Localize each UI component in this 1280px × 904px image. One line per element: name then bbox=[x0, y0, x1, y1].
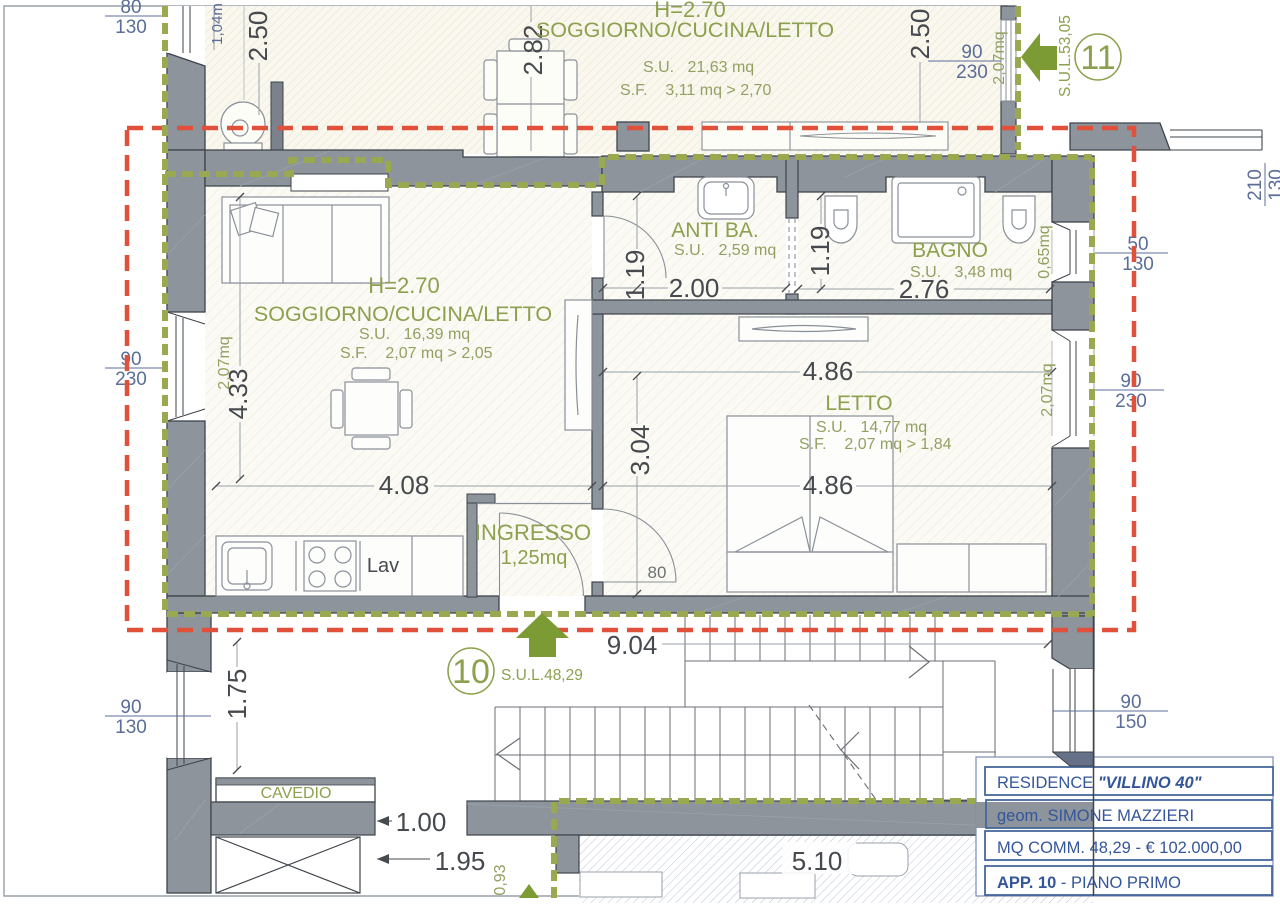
svg-text:CAVEDIO: CAVEDIO bbox=[261, 785, 332, 802]
svg-text:1.19: 1.19 bbox=[620, 250, 650, 301]
svg-text:9.04: 9.04 bbox=[607, 630, 658, 660]
svg-text:1,25mq: 1,25mq bbox=[501, 547, 568, 569]
svg-text:230: 230 bbox=[1115, 391, 1147, 412]
svg-text:H=2.70: H=2.70 bbox=[368, 273, 440, 298]
svg-text:BAGNO: BAGNO bbox=[912, 239, 988, 262]
svg-text:90: 90 bbox=[120, 349, 141, 370]
svg-text:LETTO: LETTO bbox=[825, 392, 892, 415]
svg-text:90: 90 bbox=[120, 697, 141, 718]
svg-text:MQ COMM. 48,29 - € 102.000,00: MQ COMM. 48,29 - € 102.000,00 bbox=[997, 839, 1242, 857]
svg-text:4.86: 4.86 bbox=[803, 356, 854, 386]
svg-text:2.50: 2.50 bbox=[905, 9, 935, 60]
svg-text:5.10: 5.10 bbox=[792, 846, 843, 876]
svg-text:1,04m: 1,04m bbox=[209, 3, 226, 45]
svg-text:S.U.L.53,05: S.U.L.53,05 bbox=[1057, 15, 1074, 97]
svg-text:S.U. 2,59 mq: S.U. 2,59 mq bbox=[674, 242, 776, 259]
svg-text:130: 130 bbox=[1266, 169, 1280, 201]
svg-text:4.86: 4.86 bbox=[803, 470, 854, 500]
svg-text:2,07mq: 2,07mq bbox=[991, 31, 1008, 84]
svg-text:0,65mq: 0,65mq bbox=[1036, 225, 1053, 278]
svg-text:4.08: 4.08 bbox=[379, 470, 430, 500]
svg-text:S.U. 3,48 mq: S.U. 3,48 mq bbox=[910, 264, 1012, 281]
svg-text:1.95: 1.95 bbox=[435, 846, 486, 876]
svg-text:230: 230 bbox=[115, 369, 147, 390]
svg-text:1.19: 1.19 bbox=[805, 226, 835, 277]
svg-text:90: 90 bbox=[1120, 692, 1141, 713]
svg-text:2.00: 2.00 bbox=[669, 273, 720, 303]
svg-text:S.F. 2,07 mq > 1,84: S.F. 2,07 mq > 1,84 bbox=[799, 436, 952, 453]
svg-text:geom. SIMONE MAZZIERI: geom. SIMONE MAZZIERI bbox=[997, 807, 1194, 825]
svg-text:130: 130 bbox=[115, 717, 147, 738]
svg-text:50: 50 bbox=[1127, 234, 1148, 255]
svg-text:210: 210 bbox=[1245, 169, 1266, 201]
svg-text:90: 90 bbox=[1120, 371, 1141, 392]
svg-text:80: 80 bbox=[120, 0, 141, 18]
svg-text:S.F. 3,11 mq > 2,70: S.F. 3,11 mq > 2,70 bbox=[620, 82, 771, 99]
svg-text:10: 10 bbox=[452, 653, 490, 691]
svg-text:INGRESSO: INGRESSO bbox=[475, 520, 591, 545]
svg-text:RESIDENCE "VILLINO 40": RESIDENCE "VILLINO 40" bbox=[997, 774, 1202, 792]
svg-text:S.U. 14,77 mq: S.U. 14,77 mq bbox=[816, 419, 927, 436]
svg-text:3.04: 3.04 bbox=[625, 425, 655, 476]
svg-text:ANTI BA.: ANTI BA. bbox=[671, 219, 759, 242]
svg-text:80: 80 bbox=[648, 563, 667, 582]
svg-text:SOGGIORNO/CUCINA/LETTO: SOGGIORNO/CUCINA/LETTO bbox=[536, 18, 834, 42]
svg-text:130: 130 bbox=[1122, 254, 1154, 275]
svg-text:1.75: 1.75 bbox=[222, 669, 252, 720]
svg-text:Lav: Lav bbox=[367, 555, 399, 577]
svg-text:2,07mq: 2,07mq bbox=[1039, 363, 1056, 416]
svg-text:130: 130 bbox=[115, 17, 147, 38]
svg-text:2.50: 2.50 bbox=[243, 11, 273, 62]
svg-text:S.U.L.48,29: S.U.L.48,29 bbox=[501, 667, 583, 684]
svg-text:90: 90 bbox=[961, 42, 982, 63]
svg-text:0,93: 0,93 bbox=[492, 864, 509, 895]
svg-text:150: 150 bbox=[1115, 712, 1147, 733]
svg-text:S.U. 21,63 mq: S.U. 21,63 mq bbox=[643, 59, 754, 76]
svg-text:2,07mq: 2,07mq bbox=[216, 336, 233, 389]
svg-text:SOGGIORNO/CUCINA/LETTO: SOGGIORNO/CUCINA/LETTO bbox=[254, 302, 552, 326]
svg-text:11: 11 bbox=[1080, 39, 1115, 77]
svg-text:230: 230 bbox=[956, 62, 988, 83]
svg-text:S.U. 16,39 mq: S.U. 16,39 mq bbox=[359, 326, 470, 343]
svg-text:S.F. 2,07 mq > 2,05: S.F. 2,07 mq > 2,05 bbox=[340, 345, 493, 362]
svg-text:APP. 10 - PIANO PRIMO: APP. 10 - PIANO PRIMO bbox=[997, 874, 1181, 892]
svg-text:1.00: 1.00 bbox=[396, 807, 447, 837]
